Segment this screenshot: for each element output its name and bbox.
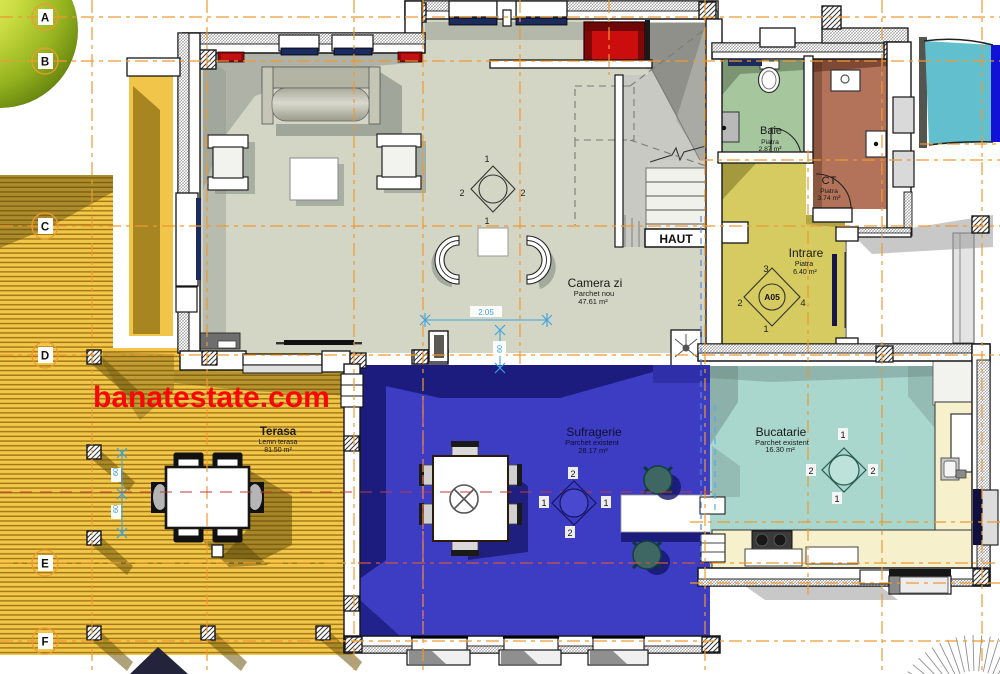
svg-text:60: 60 xyxy=(111,505,120,513)
svg-text:2: 2 xyxy=(737,298,742,309)
svg-text:60: 60 xyxy=(111,468,120,476)
svg-text:2.87 m²: 2.87 m² xyxy=(758,146,782,153)
svg-text:1: 1 xyxy=(484,154,489,164)
svg-text:D: D xyxy=(41,351,49,363)
svg-text:60: 60 xyxy=(497,345,504,353)
svg-text:A: A xyxy=(41,13,49,25)
svg-text:81.50 m²: 81.50 m² xyxy=(264,447,292,454)
svg-text:C: C xyxy=(41,222,49,234)
svg-text:banatestate.com: banatestate.com xyxy=(93,381,330,414)
svg-text:2: 2 xyxy=(459,188,464,198)
svg-text:2: 2 xyxy=(570,469,575,479)
svg-text:1: 1 xyxy=(541,498,546,508)
svg-text:Camera zi: Camera zi xyxy=(568,276,623,290)
svg-text:6.40 m²: 6.40 m² xyxy=(793,269,817,276)
svg-text:Piatra: Piatra xyxy=(820,188,838,195)
svg-text:Terasa: Terasa xyxy=(260,426,297,438)
svg-text:4: 4 xyxy=(800,298,805,309)
svg-text:Piatra: Piatra xyxy=(795,261,813,268)
svg-text:1: 1 xyxy=(484,216,489,226)
svg-text:B: B xyxy=(41,57,49,69)
svg-text:2: 2 xyxy=(567,528,572,538)
svg-text:Intrare: Intrare xyxy=(789,246,824,260)
svg-text:28.17 m²: 28.17 m² xyxy=(578,446,608,455)
svg-text:F: F xyxy=(41,637,48,649)
svg-text:2.05: 2.05 xyxy=(478,308,494,317)
svg-text:HAUT: HAUT xyxy=(659,232,693,246)
svg-text:16.30 m²: 16.30 m² xyxy=(765,445,795,454)
svg-text:A05: A05 xyxy=(764,292,780,302)
svg-text:Sufragerie: Sufragerie xyxy=(566,425,622,439)
svg-text:3: 3 xyxy=(763,264,768,275)
svg-text:2: 2 xyxy=(520,188,525,198)
svg-text:1: 1 xyxy=(603,498,608,508)
svg-text:1: 1 xyxy=(763,324,768,335)
svg-text:1: 1 xyxy=(834,494,839,504)
svg-text:Lemn terasa: Lemn terasa xyxy=(259,439,298,446)
svg-text:Piatra: Piatra xyxy=(761,139,779,146)
svg-text:Bucatarie: Bucatarie xyxy=(756,425,807,439)
svg-text:CT: CT xyxy=(822,175,837,187)
svg-text:3.74 m²: 3.74 m² xyxy=(817,195,841,202)
svg-text:Baie: Baie xyxy=(760,125,782,137)
svg-text:2: 2 xyxy=(870,466,875,476)
svg-text:1: 1 xyxy=(840,430,845,440)
svg-text:2: 2 xyxy=(808,466,813,476)
svg-text:E: E xyxy=(41,559,49,571)
svg-text:47.61 m²: 47.61 m² xyxy=(578,297,608,306)
